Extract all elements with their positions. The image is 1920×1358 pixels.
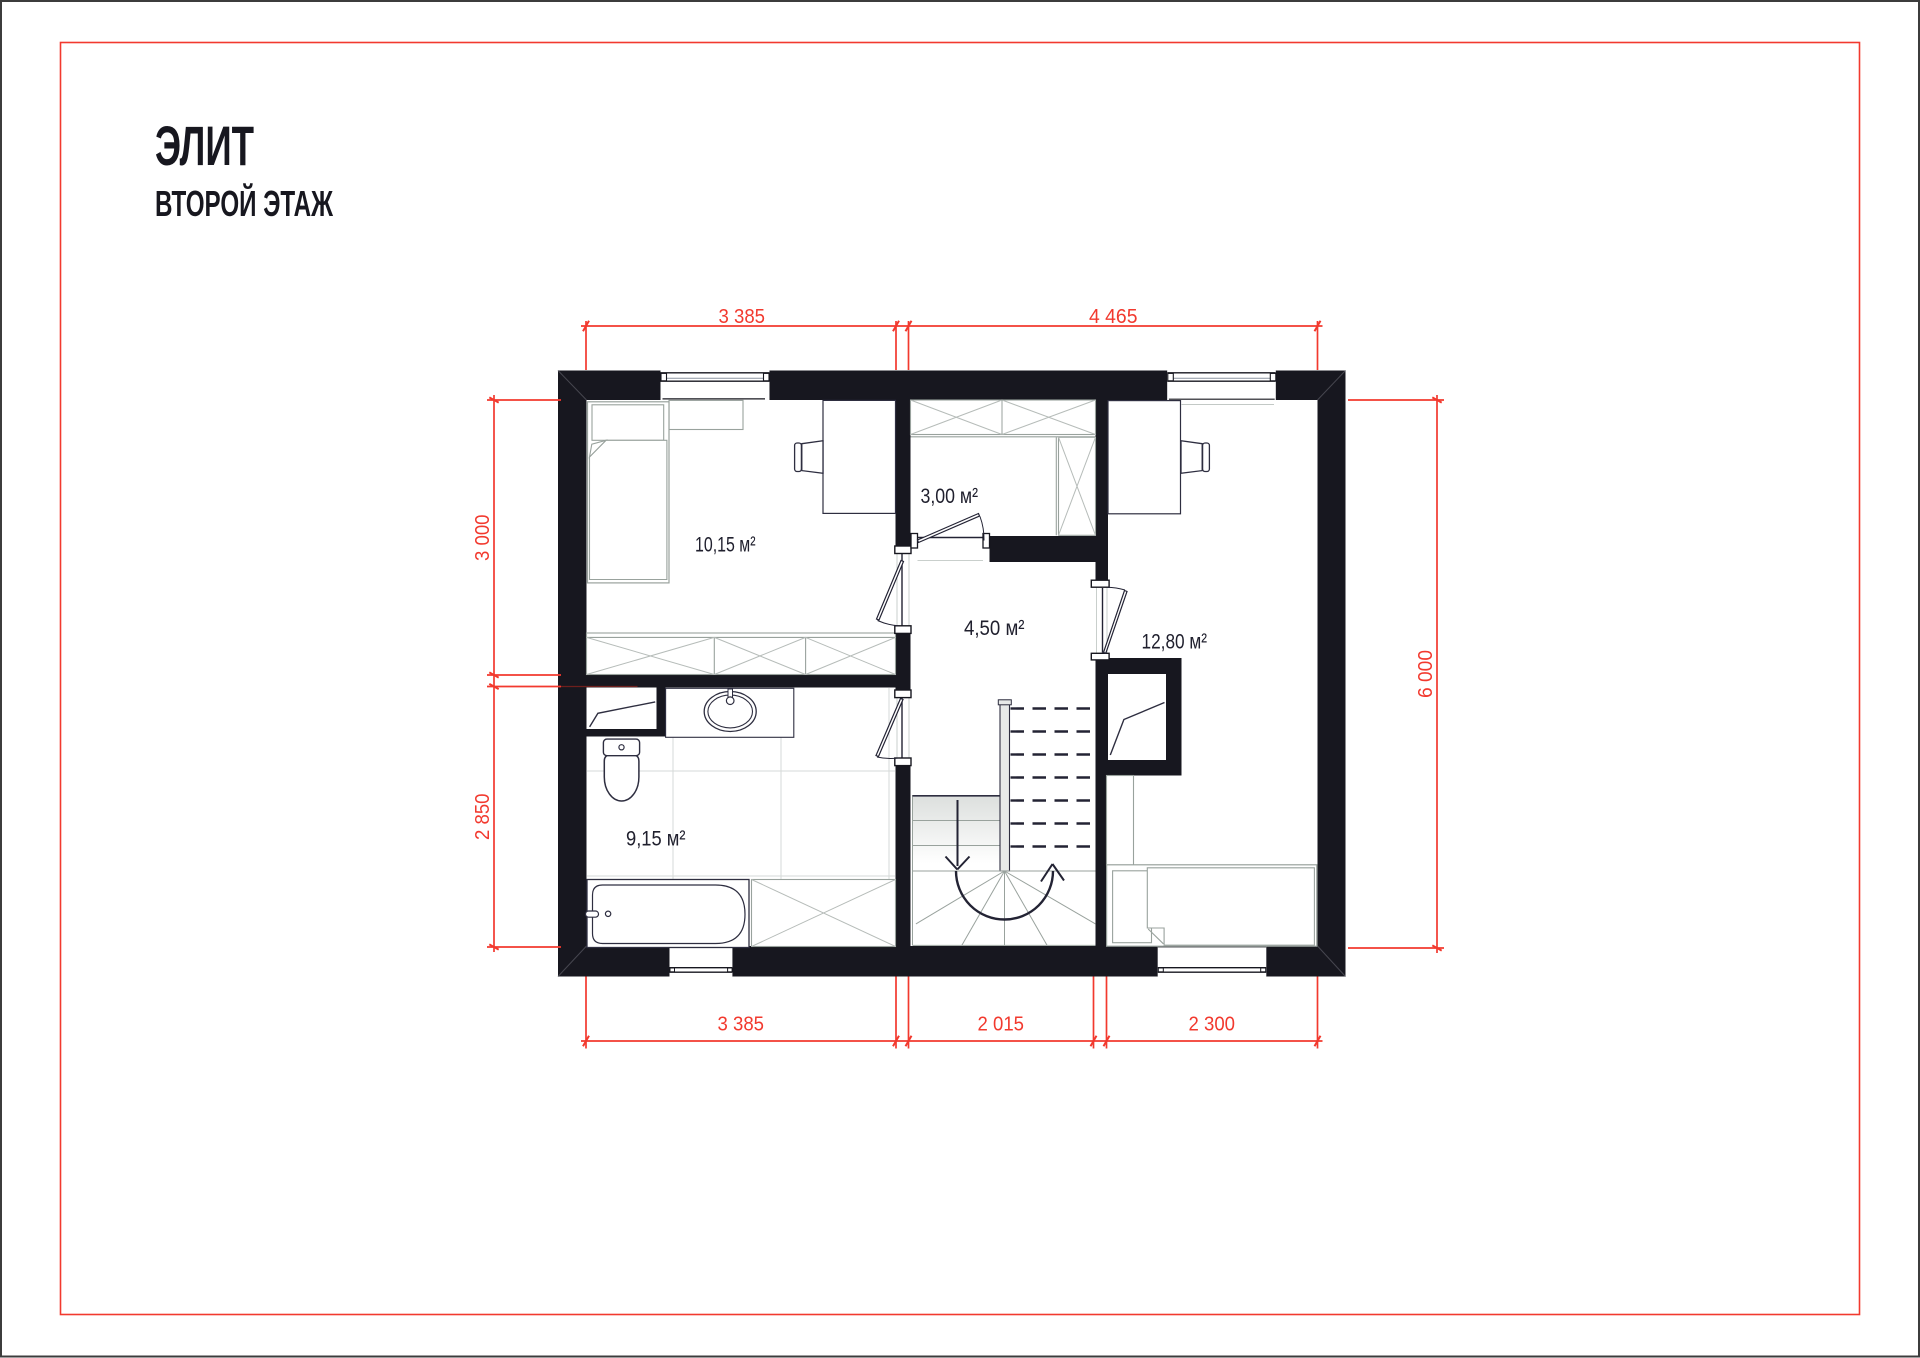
svg-text:3 385: 3 385 xyxy=(719,305,766,328)
svg-text:12,80 м²: 12,80 м² xyxy=(1142,630,1208,654)
svg-text:3,00 м²: 3,00 м² xyxy=(921,484,979,508)
svg-text:2 850: 2 850 xyxy=(471,794,494,841)
svg-text:10,15 м²: 10,15 м² xyxy=(695,533,756,557)
svg-text:2 015: 2 015 xyxy=(978,1013,1025,1036)
svg-text:4 465: 4 465 xyxy=(1089,305,1138,328)
svg-text:4,50 м²: 4,50 м² xyxy=(964,616,1025,640)
svg-text:6 000: 6 000 xyxy=(1414,650,1437,698)
svg-text:2 300: 2 300 xyxy=(1189,1013,1236,1036)
svg-text:3 385: 3 385 xyxy=(718,1013,765,1036)
svg-text:ВТОРОЙ ЭТАЖ: ВТОРОЙ ЭТАЖ xyxy=(155,182,334,224)
svg-text:3 000: 3 000 xyxy=(471,515,494,562)
svg-text:9,15 м²: 9,15 м² xyxy=(626,827,686,851)
svg-text:ЭЛИТ: ЭЛИТ xyxy=(155,114,254,177)
